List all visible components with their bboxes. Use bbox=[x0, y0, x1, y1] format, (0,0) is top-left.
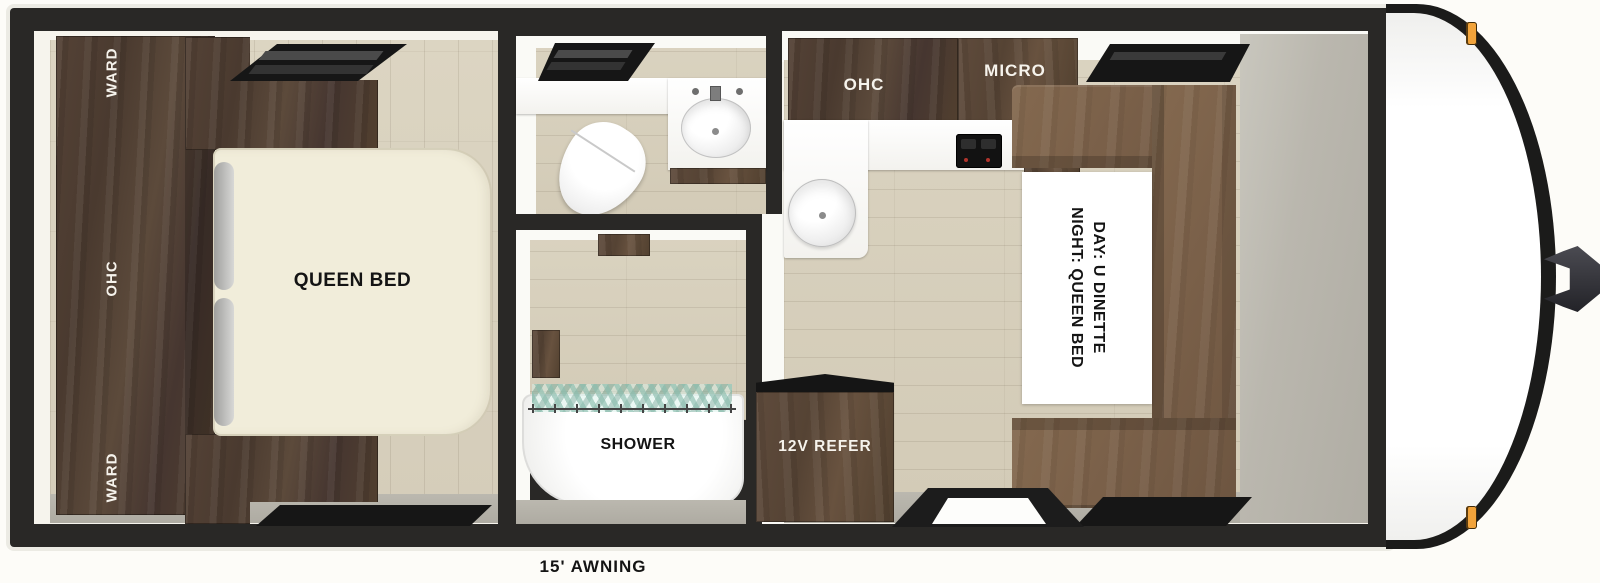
dinette-label: DAY: U DINETTE NIGHT: QUEEN BED bbox=[1065, 208, 1108, 369]
cooktop-burner bbox=[981, 139, 996, 149]
shower-label: SHOWER bbox=[588, 432, 688, 458]
cooktop-knob bbox=[986, 158, 990, 162]
bedroom-roof-vent-slat bbox=[248, 65, 373, 74]
bathroom-faucet-knob bbox=[692, 88, 699, 95]
bathroom-sink-drain bbox=[712, 128, 719, 135]
cooktop-burner bbox=[961, 139, 976, 149]
kitchen-micro-label: MICRO bbox=[970, 58, 1060, 84]
bathroom-faucet-knob bbox=[736, 88, 743, 95]
bathroom-left-wall bbox=[516, 36, 536, 220]
bed-pillow bbox=[214, 162, 234, 290]
bathroom-roof-vent-slat bbox=[547, 62, 626, 70]
awning-label: 15' AWNING bbox=[498, 554, 688, 580]
shower-left-wall bbox=[516, 230, 530, 524]
marker-light-bottom bbox=[1466, 506, 1477, 529]
dinette-label-day: DAY: U DINETTE bbox=[1087, 208, 1109, 369]
bathroom-sink-cabinet bbox=[670, 168, 766, 184]
ward-bottom-label: WARD bbox=[86, 445, 138, 509]
bathroom-faucet bbox=[710, 86, 721, 101]
shower-room-walkway bbox=[516, 500, 746, 524]
dinette-bottom-window bbox=[1076, 497, 1252, 526]
cooktop-knob bbox=[964, 158, 968, 162]
front-storage-area bbox=[1240, 34, 1368, 523]
bed-pillow bbox=[214, 298, 234, 426]
dinette-label-night: NIGHT: QUEEN BED bbox=[1065, 208, 1087, 369]
dinette-label-card: DAY: U DINETTE NIGHT: QUEEN BED bbox=[1022, 172, 1152, 404]
bedroom-wardrobe-side-face bbox=[185, 150, 215, 434]
kitchen-sink-drain bbox=[819, 212, 826, 219]
queen-bed-label: QUEEN BED bbox=[250, 268, 455, 294]
bedroom-roof-vent-slat bbox=[258, 51, 383, 60]
rv-floorplan: WARD OHC WARD QUEEN BED bbox=[0, 0, 1600, 583]
kitchen-ohc-label: OHC bbox=[828, 72, 900, 98]
refrigerator-label: 12V REFER bbox=[752, 434, 898, 460]
ward-top-label: WARD bbox=[86, 40, 138, 104]
bathroom-roof-vent-slat bbox=[554, 50, 633, 58]
bedroom-ohc-label: OHC bbox=[86, 246, 138, 310]
shower-side-cabinet bbox=[532, 330, 560, 378]
bedroom-window bbox=[256, 505, 492, 526]
shower-overhead-cabinet bbox=[598, 234, 650, 256]
dinette-top-window-slat bbox=[1110, 52, 1227, 60]
dinette-top-window bbox=[1086, 44, 1250, 82]
shower-curtain-hooks bbox=[532, 404, 732, 413]
marker-light-top bbox=[1466, 22, 1477, 45]
